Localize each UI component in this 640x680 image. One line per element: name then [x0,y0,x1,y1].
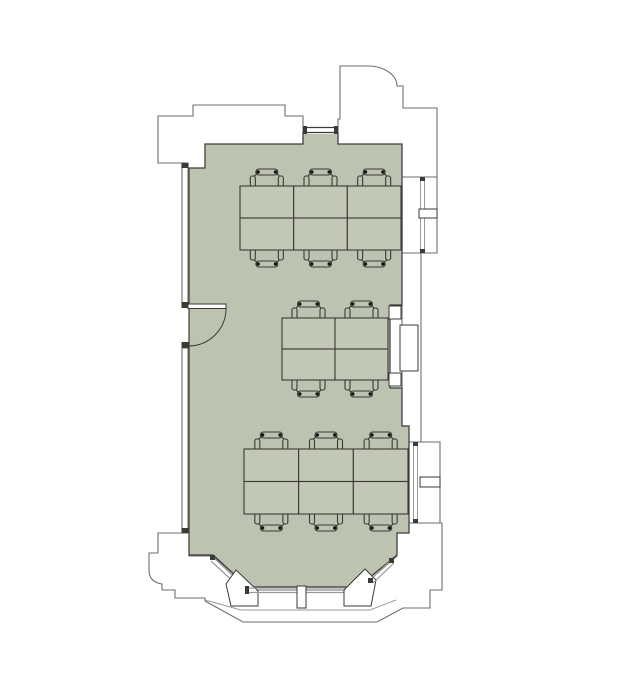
chair-backrest-dot [278,526,281,529]
pilaster-tab-bottom [389,373,401,386]
chair-backrest-dot [351,302,354,305]
chair-backrest-dot [388,526,391,529]
chair-backrest-dot [316,392,319,395]
desk [240,218,294,250]
chair-backrest-dot [333,433,336,436]
chair-backrest-dot [369,302,372,305]
desk [335,318,388,349]
chair-backrest-dot [256,262,259,265]
chair-backrest-dot [278,433,281,436]
chair-backrest-dot [369,392,372,395]
bay-right-cap-top [389,558,394,563]
chair-backrest-dot [351,392,354,395]
west-wall-lower [182,348,188,533]
chair-backrest-dot [310,262,313,265]
west-wall-upper [182,163,188,303]
west-wall-tick-top [182,163,189,168]
desk [299,482,354,515]
east-upper-cap-bottom [420,249,425,253]
door-jamb-top [182,302,189,308]
chair-backrest-dot [274,170,277,173]
floor-plan-canvas [0,0,640,680]
desk [282,318,335,349]
chair-backrest-dot [328,170,331,173]
desk [335,349,388,380]
chair-backrest-dot [364,170,367,173]
chair-backrest-dot [388,433,391,436]
west-wall-tick-bottom [182,528,189,533]
desk [347,218,401,250]
chair-backrest-dot [364,262,367,265]
desk [353,449,408,482]
north-window [303,126,338,134]
north-window-cap-right [334,126,338,134]
west-wall [182,163,189,533]
east-upper-mullion [419,209,437,218]
chair-backrest-dot [370,526,373,529]
chair-backrest-dot [316,433,319,436]
chair-backrest-dot [298,302,301,305]
chair-backrest-dot [316,526,319,529]
chair-backrest-dot [381,170,384,173]
east-lower-cap-bottom [413,519,418,523]
floor-plan [0,0,640,680]
north-window-cap-left [303,126,307,134]
east-lower-glazing [414,444,418,521]
chair-backrest-dot [310,170,313,173]
chair-backrest-dot [328,262,331,265]
chair-backrest-dot [370,433,373,436]
desk [244,482,299,515]
chair-backrest-dot [256,170,259,173]
south-cluster [244,432,408,531]
chair-backrest-dot [298,392,301,395]
north-cluster [240,169,401,267]
desk [299,449,354,482]
door-jamb-bottom [182,342,189,348]
chair-backrest-dot [316,302,319,305]
bay-center-cap-left [245,586,249,594]
desk [244,449,299,482]
chair-backrest-dot [261,526,264,529]
bay-center-mullion [297,586,306,608]
chair-backrest-dot [261,433,264,436]
desk [294,186,348,218]
east-lower-mullion [420,477,440,487]
desk [294,218,348,250]
bay-left-cap-top [210,555,215,560]
pilaster-box [400,325,418,371]
desk [240,186,294,218]
pilaster-tab-top [389,306,401,319]
chair-backrest-dot [381,262,384,265]
desk [282,349,335,380]
desk [353,482,408,515]
chair-backrest-dot [333,526,336,529]
chair-backrest-dot [274,262,277,265]
desk [347,186,401,218]
east-upper-cap-top [420,177,425,181]
east-lower-cap-top [413,442,418,446]
bay-right-cap-bottom [368,578,373,583]
door-leaf [188,304,226,309]
